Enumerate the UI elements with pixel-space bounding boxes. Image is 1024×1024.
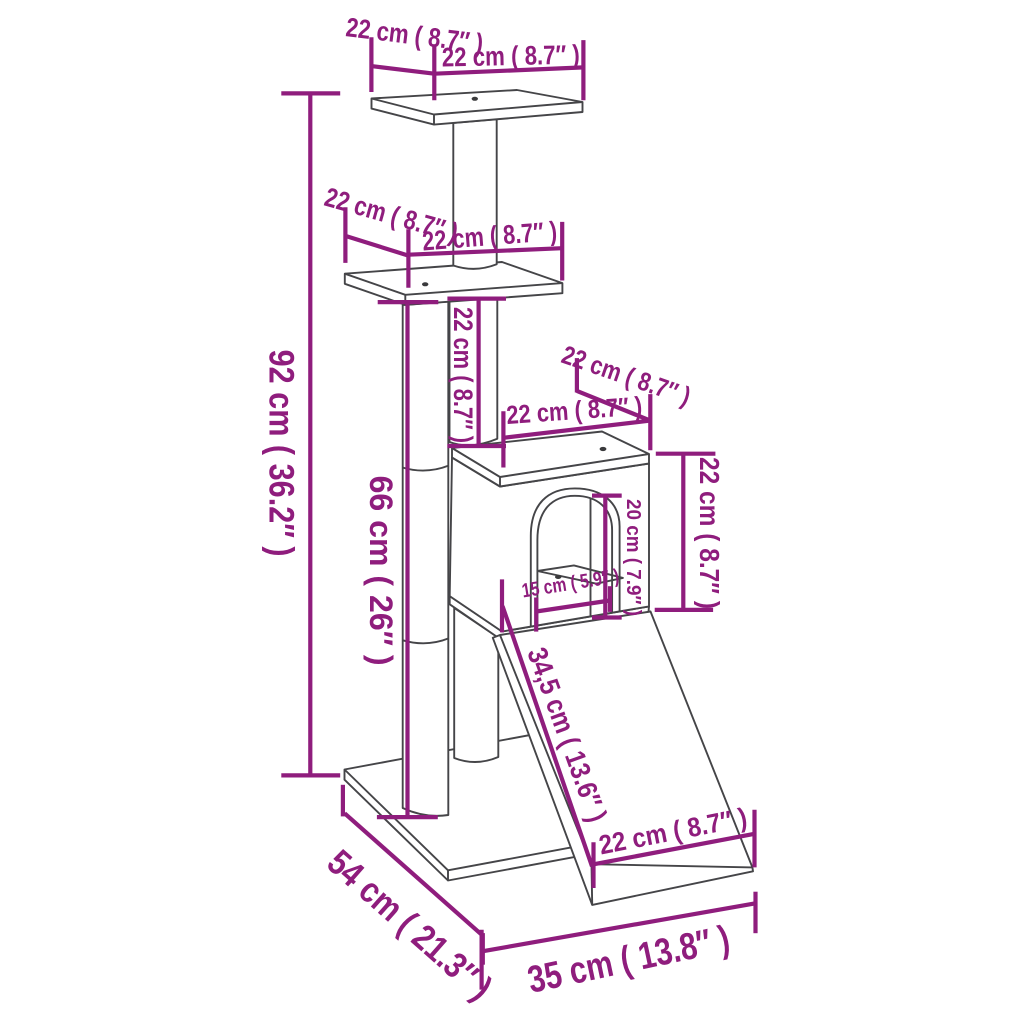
svg-text:22 cm ( 8.7″ ): 22 cm ( 8.7″ )	[694, 457, 725, 609]
svg-text:66 cm ( 26″ ): 66 cm ( 26″ )	[363, 476, 399, 666]
svg-text:20 cm ( 7.9″ ): 20 cm ( 7.9″ )	[622, 499, 644, 616]
svg-text:22 cm ( 8.7″ ): 22 cm ( 8.7″ )	[448, 307, 478, 443]
svg-text:22 cm ( 8.7″ ): 22 cm ( 8.7″ )	[441, 40, 580, 73]
svg-text:92 cm ( 36.2″ ): 92 cm ( 36.2″ )	[262, 350, 301, 557]
